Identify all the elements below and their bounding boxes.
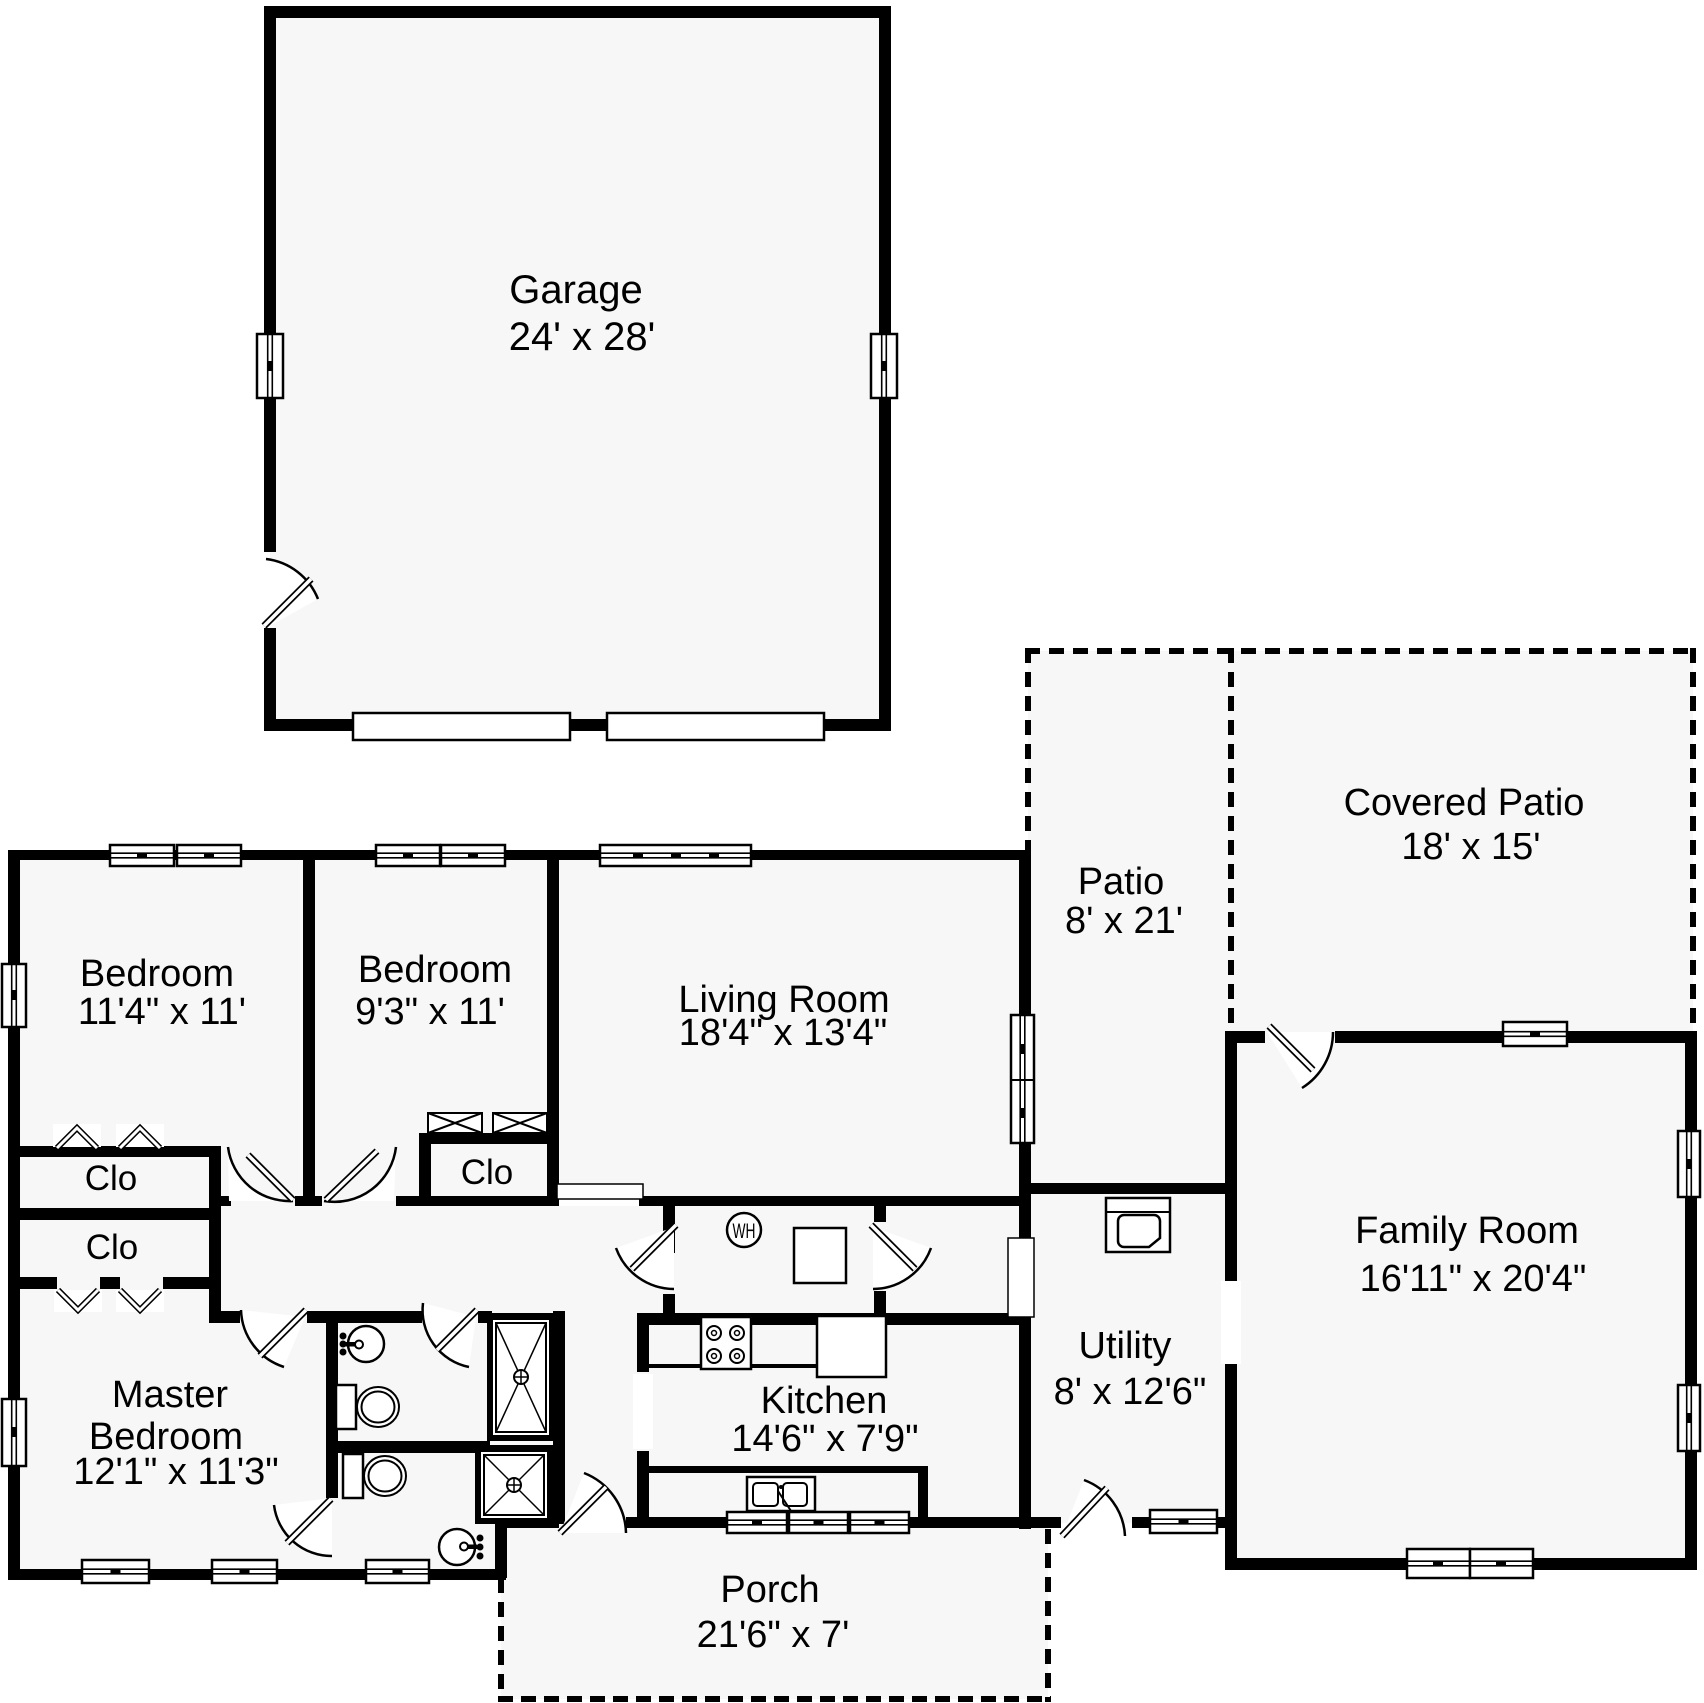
svg-text:Patio: Patio bbox=[1078, 861, 1165, 903]
svg-text:Bedroom: Bedroom bbox=[80, 953, 234, 995]
svg-text:18' x 15': 18' x 15' bbox=[1401, 826, 1540, 868]
svg-text:Clo: Clo bbox=[86, 1228, 139, 1267]
svg-text:Kitchen: Kitchen bbox=[761, 1380, 888, 1422]
svg-text:9'3" x 11': 9'3" x 11' bbox=[355, 991, 505, 1033]
svg-text:8' x 12'6": 8' x 12'6" bbox=[1054, 1371, 1207, 1413]
svg-text:16'11" x 20'4": 16'11" x 20'4" bbox=[1360, 1258, 1587, 1300]
svg-text:14'6" x 7'9": 14'6" x 7'9" bbox=[731, 1418, 918, 1460]
svg-text:Family Room: Family Room bbox=[1355, 1210, 1579, 1252]
svg-text:21'6" x 7': 21'6" x 7' bbox=[697, 1614, 850, 1656]
svg-text:Clo: Clo bbox=[85, 1159, 138, 1198]
svg-text:Utility: Utility bbox=[1079, 1325, 1172, 1367]
svg-text:11'4" x 11': 11'4" x 11' bbox=[78, 991, 246, 1033]
svg-text:24' x 28': 24' x 28' bbox=[509, 315, 655, 359]
svg-text:12'1" x 11'3": 12'1" x 11'3" bbox=[73, 1451, 279, 1493]
svg-text:18'4" x 13'4": 18'4" x 13'4" bbox=[679, 1012, 887, 1054]
svg-text:Clo: Clo bbox=[461, 1153, 514, 1192]
svg-text:Covered Patio: Covered Patio bbox=[1344, 782, 1585, 824]
svg-text:Bedroom: Bedroom bbox=[358, 949, 512, 991]
svg-text:Master: Master bbox=[112, 1374, 228, 1416]
svg-text:8' x 21': 8' x 21' bbox=[1065, 900, 1183, 942]
svg-text:Porch: Porch bbox=[720, 1569, 819, 1611]
svg-text:WH: WH bbox=[733, 1220, 756, 1243]
svg-text:Garage: Garage bbox=[509, 268, 642, 312]
